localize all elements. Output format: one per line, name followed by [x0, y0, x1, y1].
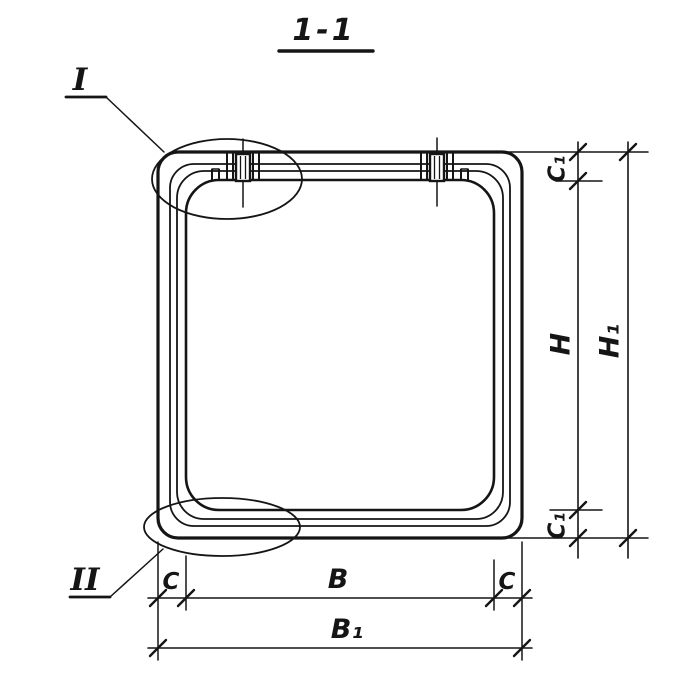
dimensions-bottom: C B C B₁	[148, 542, 532, 660]
detail-callout-1: I	[66, 62, 164, 152]
drawing-canvas: 1-1 I	[0, 0, 700, 700]
dim-b-label: B	[328, 564, 349, 595]
dim-c1-top-label: C₁	[545, 156, 571, 183]
detail-callout-2-leader	[110, 549, 163, 597]
joint-detail-left	[212, 139, 259, 207]
joint-key	[430, 154, 444, 181]
detail-callout-2-label: II	[69, 562, 101, 598]
section-outline	[158, 152, 522, 538]
section-title: 1-1	[292, 13, 355, 48]
outer-contour	[158, 152, 522, 538]
detail-circle-2	[144, 498, 300, 556]
dim-c-right-label: C	[499, 569, 516, 595]
detail-callout-1-label: I	[72, 62, 89, 98]
dim-c1-bottom-label: C₁	[545, 513, 571, 540]
inner-wall-line-2	[177, 171, 503, 519]
detail-callout-1-leader	[106, 97, 164, 152]
inner-contour	[186, 180, 494, 510]
dim-c-left-label: C	[163, 569, 180, 595]
joint-key	[236, 154, 250, 181]
drawing-sheet: 1-1 I	[0, 0, 700, 700]
dim-h-label: H	[546, 332, 577, 355]
detail-callout-2: II	[69, 549, 163, 598]
joint-detail-right	[421, 138, 468, 206]
dim-h1-label: H₁	[595, 324, 626, 358]
dim-b1-label: B₁	[331, 614, 363, 645]
